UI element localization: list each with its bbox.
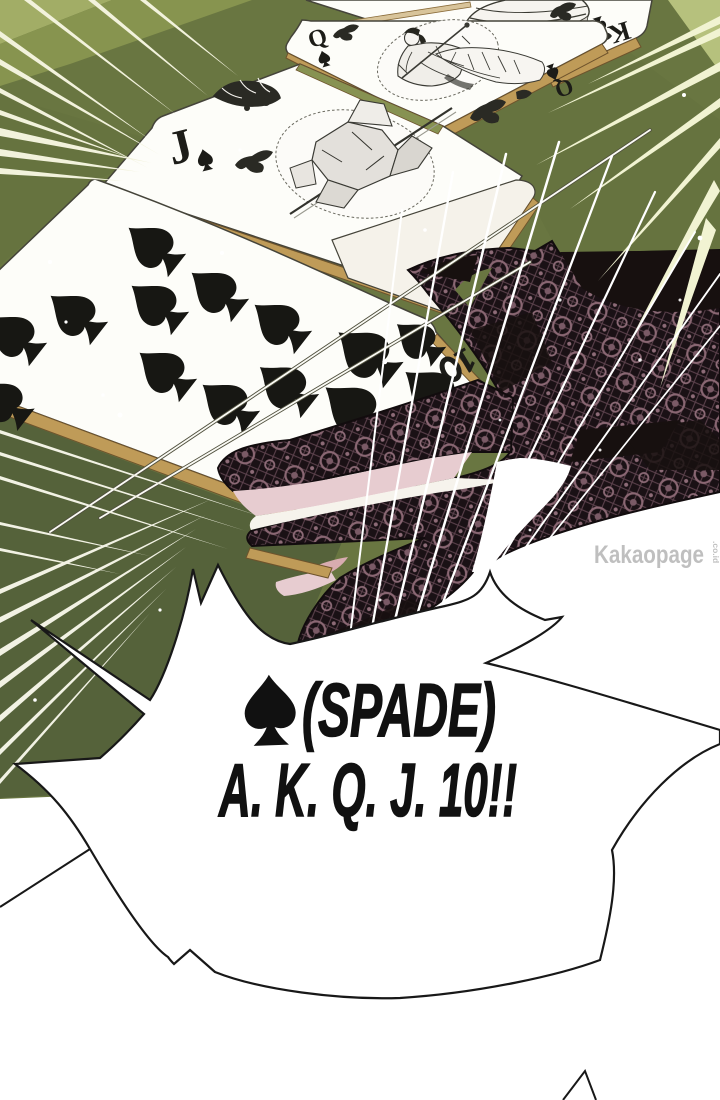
svg-text:.co.id: .co.id (711, 541, 720, 563)
svg-text:(SPADE): (SPADE) (302, 668, 496, 752)
svg-text:Kakaopage: Kakaopage (594, 541, 704, 569)
svg-text:A. K. Q. J. 10!!: A. K. Q. J. 10!! (218, 748, 517, 832)
